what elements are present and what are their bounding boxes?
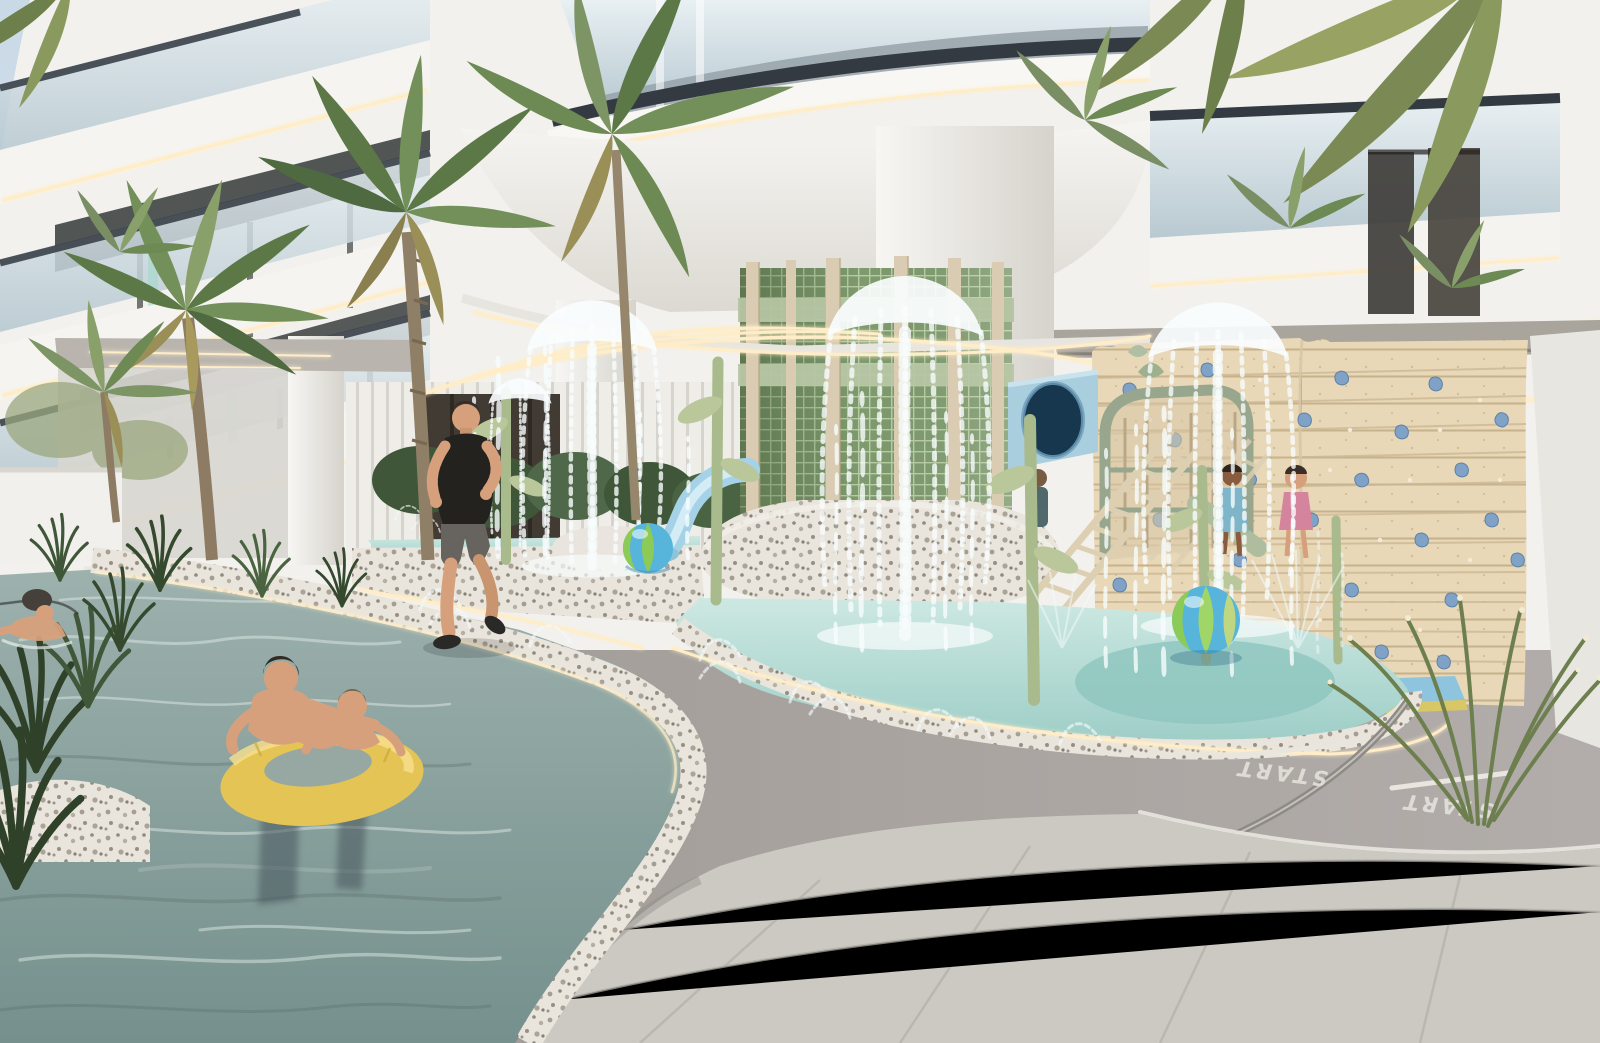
- scene-svg: START START: [0, 0, 1600, 1043]
- water-jet: [971, 438, 973, 640]
- water-jet: [835, 428, 837, 640]
- water-jet: [544, 350, 546, 552]
- tower-band-mid: [738, 364, 1014, 386]
- water-jet: [1135, 429, 1137, 668]
- beach-ball-right: [1170, 586, 1242, 666]
- water-jet: [1163, 412, 1165, 670]
- water-jet: [1105, 452, 1107, 664]
- beach-ball-left: [623, 523, 673, 573]
- water-jet: [687, 438, 689, 558]
- water-jet: [861, 398, 863, 646]
- water-jet: [945, 416, 947, 646]
- render-canvas: START START: [0, 0, 1600, 1043]
